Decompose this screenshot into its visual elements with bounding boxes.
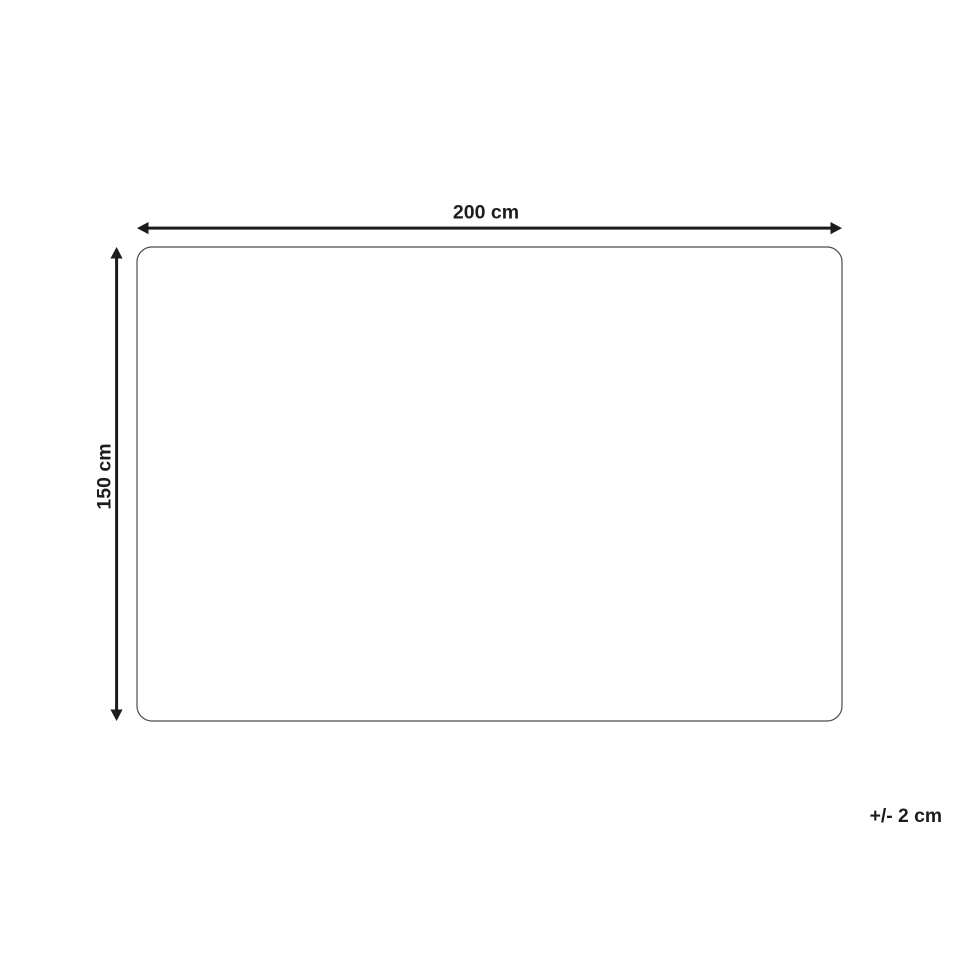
svg-text:+/- 2 cm: +/- 2 cm [870, 806, 942, 827]
svg-text:150 cm: 150 cm [94, 443, 116, 509]
svg-text:200 cm: 200 cm [453, 202, 519, 224]
